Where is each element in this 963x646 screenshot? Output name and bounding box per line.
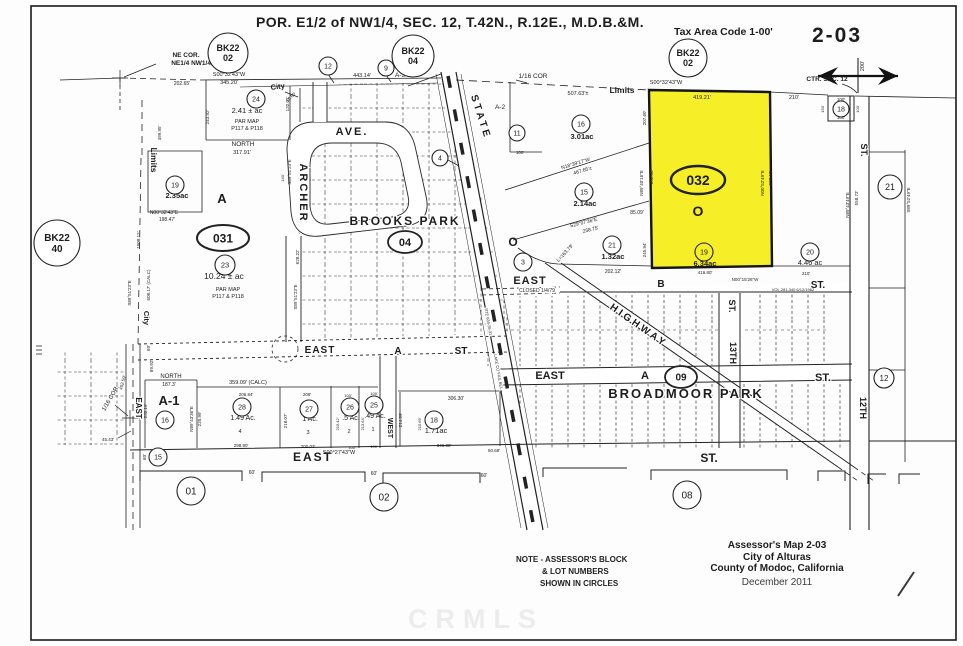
map-label: N89°43'49"E xyxy=(845,192,850,218)
map-credits: Assessor's Map 2-03 City of Alturas Coun… xyxy=(688,540,866,588)
circled-number-text: 15 xyxy=(580,190,588,197)
map-label: 210' xyxy=(802,271,811,276)
map-label: 218.07' xyxy=(283,414,288,429)
assessor-map-page: NE COR.NE1/4 NW1/4,202.65'S00°32'43"W345… xyxy=(0,0,963,646)
map-label: CTR. SEC. 12 xyxy=(806,76,848,83)
map-label: PAR MAP xyxy=(216,287,241,293)
map-label: 60.68' xyxy=(488,448,500,453)
map-label: 346.38' xyxy=(437,443,452,448)
map-label: STATE xyxy=(468,94,493,141)
circled-number-text: BK22 xyxy=(401,46,424,56)
map-label: ST. xyxy=(811,280,826,291)
circled-number: 09 xyxy=(665,366,697,388)
circled-number-text: 02 xyxy=(378,493,390,504)
assessor-note: NOTE - ASSESSOR'S BLOCK & LOT NUMBERS SH… xyxy=(516,554,627,590)
map-title: POR. E1/2 of NW1/4, SEC. 12, T.42N., R.1… xyxy=(235,14,665,30)
circled-number-text: 19 xyxy=(700,250,708,257)
map-label: 507.63'± xyxy=(568,91,589,97)
map-label: 60' xyxy=(142,454,147,460)
map-label: 12TH xyxy=(858,397,868,419)
map-label: N00°32'43"E xyxy=(150,210,179,216)
circled-number: 23 xyxy=(215,255,235,275)
map-label: NE COR. xyxy=(172,52,199,59)
credit-line: Assessor's Map 2-03 xyxy=(688,540,866,552)
circled-number: 15 xyxy=(149,448,167,466)
map-label: 558.73' xyxy=(854,191,859,206)
circled-number-text: 27 xyxy=(305,407,313,414)
map-label: City xyxy=(270,81,286,92)
map-label: 1/16 COR xyxy=(519,73,548,80)
map-label: 187.3' xyxy=(162,382,176,388)
circled-number-text: 031 xyxy=(213,231,233,245)
map-label: S00°32'43"W xyxy=(650,80,683,86)
map-label: 2 xyxy=(347,429,350,435)
map-label: BROOKS PARK xyxy=(349,214,460,228)
map-label: 608.17' (CALC) xyxy=(146,269,151,300)
circled-number-text: 15 xyxy=(154,455,162,462)
map-label: 443.14' xyxy=(353,73,371,79)
map-label: 100' xyxy=(516,150,525,155)
circled-number: 27 xyxy=(300,400,318,418)
map-label: 210' xyxy=(789,95,799,101)
circled-number: 08 xyxy=(673,481,701,509)
circled-number-text: 11 xyxy=(513,131,520,138)
circled-number-text: 02 xyxy=(683,58,693,68)
circled-number: 21 xyxy=(603,236,621,254)
map-label: 1 xyxy=(371,427,374,433)
circled-number: 20 xyxy=(801,243,819,261)
map-label: 6.34ac xyxy=(694,259,717,268)
circled-number: BK2204 xyxy=(392,35,434,77)
map-label: 215.42' xyxy=(335,417,340,430)
map-label: ST. xyxy=(859,143,869,156)
map-label: 202.65' xyxy=(174,81,190,87)
map-label: 603.15' xyxy=(768,171,773,186)
map-label: 45.43' xyxy=(102,437,114,442)
map-label: 345.20' xyxy=(220,80,238,86)
circled-number: 28 xyxy=(233,398,251,416)
circled-number: 18 xyxy=(833,101,849,117)
map-label: 306.30' xyxy=(448,396,464,402)
circled-number: 18 xyxy=(425,411,443,429)
map-label: 100' xyxy=(370,391,378,396)
map-label: 298.90' xyxy=(234,443,249,448)
map-label: B xyxy=(657,279,664,290)
map-label: N89°40'16"E xyxy=(639,170,644,196)
map-label: 85.09' xyxy=(630,210,644,216)
circled-number-text: 24 xyxy=(252,97,260,104)
map-label: S89°51'23"E xyxy=(293,284,298,309)
map-label: 4 xyxy=(238,429,241,435)
map-label: 60' xyxy=(249,470,256,476)
circled-number: 12 xyxy=(319,57,337,75)
map-label: S89°51'23"E xyxy=(127,280,132,305)
map-label: 200.03' xyxy=(301,444,316,449)
circled-number: 031 xyxy=(197,225,249,251)
credit-line: City of Alturas xyxy=(688,552,866,564)
map-label: A-2 xyxy=(495,104,506,111)
circled-number-text: 032 xyxy=(686,172,710,188)
map-label: EAST xyxy=(513,275,546,287)
map-label: ST. xyxy=(727,299,737,312)
12th-street-corridor xyxy=(850,96,869,530)
map-label: NORTH xyxy=(232,141,255,148)
map-label: 60' xyxy=(371,471,378,477)
circled-number-text: 09 xyxy=(675,373,687,384)
map-label: 140' xyxy=(280,174,285,182)
map-label: 207.60' xyxy=(642,111,647,126)
circled-number: 04 xyxy=(388,231,422,253)
map-label: N00°15'26"W xyxy=(732,277,760,282)
circled-number-text: 21 xyxy=(608,243,616,250)
map-label: 60' xyxy=(146,345,151,351)
map-label: 258.75' xyxy=(582,225,599,235)
map-label: 202.12' xyxy=(605,269,621,275)
circled-number: 16 xyxy=(572,115,590,133)
map-label: A xyxy=(217,191,227,206)
map-label: AVE. xyxy=(336,126,369,138)
circled-number-text: 18 xyxy=(430,418,438,425)
map-label: L=163.79' xyxy=(556,243,575,263)
credit-line: County of Modoc, California xyxy=(688,563,866,575)
circled-number: BK2202 xyxy=(208,33,248,73)
note-line: NOTE - ASSESSOR'S BLOCK xyxy=(516,554,627,566)
map-label: 416.80' xyxy=(698,270,713,275)
map-label: PAR MAP xyxy=(235,119,260,125)
map-label: City xyxy=(142,311,151,326)
circled-number: 19 xyxy=(166,176,184,194)
map-label: EAST xyxy=(535,370,565,382)
map-label: 317.91' xyxy=(233,150,251,156)
map-label: 499.95' xyxy=(157,126,162,141)
circled-number: 26 xyxy=(341,398,359,416)
map-label: 1508.12' xyxy=(136,231,141,248)
pen-mark xyxy=(898,572,914,596)
circled-number-text: 08 xyxy=(681,491,693,502)
map-label: 628.22' xyxy=(295,250,300,265)
circled-number: 4 xyxy=(432,150,448,166)
circled-number: 3 xyxy=(514,253,532,271)
circled-number: 21 xyxy=(878,175,902,199)
map-label: N89°43'36"E xyxy=(189,406,194,432)
map-label: ARCHER xyxy=(297,163,309,222)
circled-number-text: 12 xyxy=(880,374,889,383)
circled-number-text: 18 xyxy=(837,107,845,114)
map-label: S89°51'23"E xyxy=(287,159,292,184)
highlighted-parcel-032 xyxy=(649,90,772,268)
circled-number: 25 xyxy=(365,396,383,414)
map-label: EAST xyxy=(293,450,333,464)
map-label: O xyxy=(693,203,704,219)
map-label: 200' xyxy=(860,61,866,71)
circled-number-text: 25 xyxy=(370,403,378,410)
circled-number-text: BK22 xyxy=(216,43,239,53)
cul-de-sac xyxy=(272,336,298,362)
map-label: ST xyxy=(455,346,468,357)
map-label: Limits xyxy=(609,85,634,95)
circled-number-text: 02 xyxy=(223,53,233,63)
map-number: 2-03 xyxy=(812,24,862,48)
map-label: 100' xyxy=(370,444,378,449)
map-label: A xyxy=(394,346,401,357)
circled-number-text: 28 xyxy=(238,405,246,412)
map-label: 214.89' xyxy=(398,413,403,428)
map-label: 245.94' xyxy=(642,243,647,258)
map-label: 232.19' xyxy=(143,404,148,419)
circled-number: 9 xyxy=(378,60,394,76)
circled-number-text: 20 xyxy=(806,250,814,257)
circled-number-text: 01 xyxy=(185,487,197,498)
crmls-watermark: CRMLS xyxy=(408,604,544,635)
note-line: & LOT NUMBERS xyxy=(542,566,627,578)
circled-number-text: 12 xyxy=(324,64,332,71)
map-label: WEST xyxy=(386,418,393,439)
map-label: 243.92' xyxy=(205,110,210,125)
circled-number: 12 xyxy=(874,368,894,388)
map-label: 132.01' xyxy=(285,97,290,112)
map-label: ST. xyxy=(700,451,717,465)
circled-number-text: 04 xyxy=(408,56,418,66)
circled-number: 16 xyxy=(156,411,174,429)
map-label: ST. xyxy=(815,372,831,384)
map-label: Limits xyxy=(149,147,159,172)
circled-number-text: 21 xyxy=(885,182,895,192)
map-label: 220.99' xyxy=(197,412,202,427)
circled-number: 24 xyxy=(247,90,265,108)
circled-number-text: 26 xyxy=(346,405,354,412)
map-label: P117 & P118 xyxy=(231,126,263,132)
circled-number-text: BK22 xyxy=(44,233,70,244)
map-label: P117 & P118 xyxy=(212,294,244,300)
map-label: CLOSED 1/4/79 xyxy=(519,288,555,294)
circled-number-text: 16 xyxy=(161,418,169,425)
map-label: 419.21' xyxy=(693,95,711,101)
map-label: 150' xyxy=(820,105,825,113)
map-label: NE1/4 NW1/4, xyxy=(171,60,213,67)
map-label: 215.69' xyxy=(417,417,422,430)
map-label: 100' xyxy=(855,105,860,113)
tax-area-code: Tax Area Code 1-00' xyxy=(674,26,773,38)
map-label: 100' xyxy=(344,393,352,398)
map-label: 89.92' xyxy=(149,360,154,372)
map-label: EAST xyxy=(305,345,336,356)
circled-number-text: 23 xyxy=(221,261,229,270)
map-label: A-1 xyxy=(159,393,180,408)
circled-number: 02 xyxy=(370,483,398,511)
circled-number: 11 xyxy=(509,125,525,141)
credit-line: December 2011 xyxy=(688,577,866,589)
map-label: EAST xyxy=(134,397,143,418)
map-label: N00°52'49"E xyxy=(760,170,765,196)
map-label: A xyxy=(641,370,649,382)
circled-number: BK2202 xyxy=(669,39,707,77)
circled-number-text: 3 xyxy=(521,260,525,267)
map-label: 359.09' (CALC) xyxy=(229,380,267,386)
map-label: S89°52'49"E xyxy=(906,187,911,212)
map-label: 206.84' xyxy=(239,392,254,397)
circled-number-text: 16 xyxy=(577,122,585,129)
map-label: 652.08' xyxy=(649,170,654,185)
map-label: 3 xyxy=(306,430,309,436)
map-label: O xyxy=(508,235,517,249)
circled-number: 01 xyxy=(177,477,205,505)
circled-number-text: 9 xyxy=(384,66,388,73)
map-label: VOL.281,340 6/12/1962 xyxy=(772,287,815,292)
circled-number-text: 4 xyxy=(438,156,442,163)
map-label: 198.47' xyxy=(159,217,175,223)
circled-number: 15 xyxy=(575,183,593,201)
map-label: 208' xyxy=(303,392,312,397)
map-label: 60' xyxy=(481,473,488,479)
circled-number-text: 40 xyxy=(51,244,63,255)
map-label: NORTH xyxy=(160,374,181,380)
map-label: 13TH xyxy=(728,342,738,364)
circled-number-text: BK22 xyxy=(676,48,699,58)
note-line: SHOWN IN CIRCLES xyxy=(540,578,627,590)
circled-number: BK2240 xyxy=(34,220,80,266)
circled-number-text: 19 xyxy=(171,183,179,190)
circled-number-text: 04 xyxy=(399,237,412,249)
